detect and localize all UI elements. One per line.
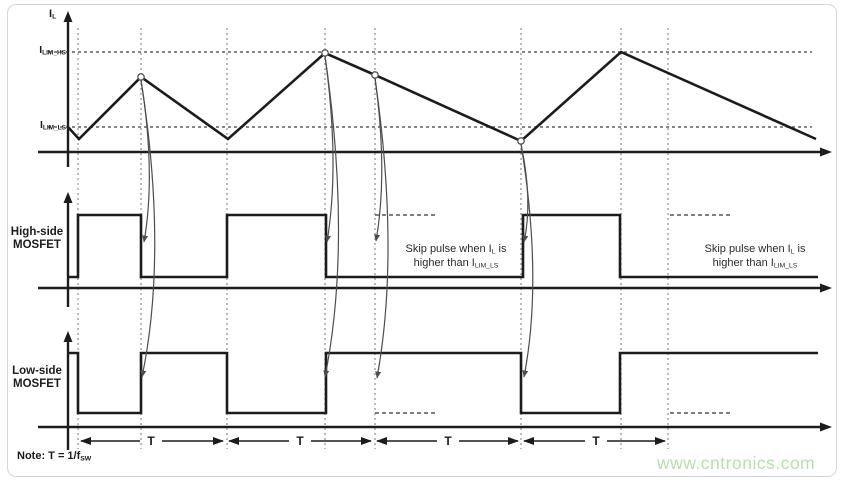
watermark: www.cntronics.com [657,453,815,474]
high-side-mosfet-label: High-sideMOSFET [5,226,69,252]
ilim-ls-label: ILIM_LS [22,119,66,131]
timing-diagram-canvas [0,0,843,482]
period-arrowhead-left [376,437,387,445]
period-arrowhead-right [361,437,372,445]
period-arrowhead-right [655,437,666,445]
il-axis-label: IL [49,8,56,20]
period-label-2: T [288,434,312,448]
period-arrowhead-right [508,437,519,445]
event-pointer-arrow [375,78,388,378]
y-axis-arrowhead [64,11,73,22]
current-event-marker [372,72,378,78]
period-label-3: T [436,434,460,448]
period-arrowhead-left [228,437,239,445]
footnote: Note: T = 1/fSW [17,450,91,462]
x-axis-arrowhead [820,148,832,157]
y-axis-arrowhead [64,192,73,203]
skip-pulse-note-2: Skip pulse when IL is higher than ILIM_L… [688,243,822,270]
current-event-marker [322,50,328,56]
x-axis-arrowhead [820,423,832,432]
ilim-hs-label: ILIM_HS [22,44,66,56]
period-label-1: T [139,434,163,448]
period-arrowhead-left [523,437,534,445]
event-pointer-arrow [141,80,155,377]
period-arrowhead-left [80,437,91,445]
low-side-mosfet-label: Low-sideMOSFET [5,365,69,391]
y-axis-arrowhead [64,331,73,342]
low-side-gate-waveform [68,353,818,413]
current-event-marker [518,138,524,144]
current-event-marker [138,74,144,80]
skip-pulse-note-1: Skip pulse when IL is higher than ILIM_L… [389,243,523,270]
period-arrowhead-right [213,437,224,445]
period-label-4: T [584,434,608,448]
x-axis-arrowhead [820,284,832,293]
